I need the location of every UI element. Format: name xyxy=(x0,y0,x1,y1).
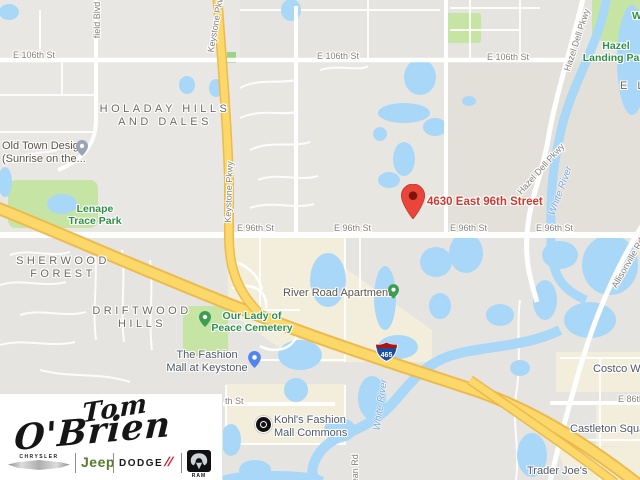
poi-label-kohls-commons[interactable]: Kohl's Fashion Mall Commons xyxy=(274,414,347,439)
brand-divider xyxy=(75,453,76,473)
park-line: Lenape xyxy=(68,203,121,215)
poi-label-our-lady-of-peace[interactable]: Our Lady of Peace Cemetery xyxy=(211,310,292,334)
poi-line: Mall at Keystone xyxy=(166,362,247,375)
poi-line: Mall Commons xyxy=(274,427,347,440)
street-label-dean-rd: Dean Rd xyxy=(350,454,360,480)
park-label-fragment: W xyxy=(632,10,640,22)
chrysler-logo-text: CHRYSLER xyxy=(8,454,70,460)
chrysler-wing-icon xyxy=(8,460,70,470)
street-label-e96th: E 96th St xyxy=(536,223,573,233)
poi-label-river-road-apartments[interactable]: River Road Apartments xyxy=(283,287,397,300)
street-label-e86th: E 86th St xyxy=(618,394,640,404)
neighborhood-label-driftwood-hills: DRIFTWOOD HILLS xyxy=(92,305,191,330)
map-canvas[interactable]: E 106th St E 106th St E 106th St E 96th … xyxy=(0,0,640,480)
poi-label-castleton-square[interactable]: Castleton Square xyxy=(570,423,640,436)
poi-line: (Sunrise on the... xyxy=(2,153,86,166)
ram-logo-text: RAM xyxy=(187,473,211,479)
street-label-e106th: E 106th St xyxy=(487,52,529,62)
kohls-logo-inner xyxy=(260,421,267,428)
dodge-slashes-icon: // xyxy=(163,454,173,469)
street-label-e86th-fragment: th St xyxy=(225,396,244,406)
brand-divider xyxy=(181,453,182,473)
neighborhood-line: DRIFTWOOD xyxy=(92,305,191,318)
jeep-logo-text: Jeep xyxy=(81,454,115,470)
poi-label-old-town-design[interactable]: Old Town Design (Sunrise on the... xyxy=(2,140,86,165)
street-label-keystone-pkwy: Keystone Pkwy xyxy=(223,161,235,223)
street-label-e106th: E 106th St xyxy=(13,50,55,60)
poi-line: Our Lady of xyxy=(211,310,292,322)
dodge-logo-text: DODGE xyxy=(119,458,163,469)
apartments-pin-icon[interactable] xyxy=(388,284,399,299)
park-label-lenape-trace: Lenape Trace Park xyxy=(68,203,121,227)
kohls-logo-marker[interactable] xyxy=(255,416,272,433)
interstate-465-shield-icon: 465 xyxy=(375,342,398,362)
neighborhood-label-holaday-hills: HOLADAY HILLS AND DALES xyxy=(100,103,231,128)
neighborhood-label-sherwood-forest: SHERWOOD FOREST xyxy=(16,255,110,280)
old-town-pin-icon[interactable] xyxy=(76,140,88,156)
park-line: Hazel xyxy=(583,40,640,52)
neighborhood-line: SHERWOOD xyxy=(16,255,110,268)
street-label-e96th: E 96th St xyxy=(450,223,487,233)
poi-label-trader-joes[interactable]: Trader Joe's xyxy=(527,465,587,478)
ram-head-icon xyxy=(187,450,211,472)
dealer-signature-last-name: O'Brien xyxy=(13,404,172,459)
poi-line: Kohl's Fashion xyxy=(274,414,347,427)
ram-logo-icon xyxy=(187,450,211,472)
dealer-logo-box: Tom O'Brien CHRYSLER Jeep DODGE // RAM xyxy=(0,393,223,480)
park-label-hazel-landing: Hazel Landing Park xyxy=(583,40,640,64)
park-line: Trace Park xyxy=(68,215,121,227)
poi-label-fashion-mall[interactable]: The Fashion Mall at Keystone xyxy=(166,349,247,374)
svg-text:465: 465 xyxy=(381,352,393,359)
neighborhood-line: AND DALES xyxy=(100,116,231,129)
neighborhood-line: FOREST xyxy=(16,268,110,281)
destination-address-label: 4630 East 96th Street xyxy=(427,196,543,209)
brand-divider xyxy=(113,453,114,473)
street-label-e106th: E 106th St xyxy=(317,51,359,61)
destination-pin-icon[interactable] xyxy=(401,184,425,219)
park-line: Landing Park xyxy=(583,52,640,64)
poi-line: Old Town Design xyxy=(2,140,86,153)
neighborhood-line: HILLS xyxy=(92,318,191,331)
poi-line: Peace Cemetery xyxy=(211,322,292,334)
street-label-e96th: E 96th St xyxy=(237,223,274,233)
street-label-westfield-blvd-fragment: field Blvd xyxy=(92,2,102,39)
cemetery-pin-icon[interactable] xyxy=(199,311,211,327)
shopping-pin-icon[interactable] xyxy=(248,351,261,368)
brand-logo-row: CHRYSLER Jeep DODGE // RAM xyxy=(0,454,223,480)
poi-label-costco[interactable]: Costco Wholesale xyxy=(593,363,640,376)
neighborhood-line: HOLADAY HILLS xyxy=(100,103,231,116)
street-label-e96th: E 96th St xyxy=(334,223,371,233)
neighborhood-label-fragment: E L xyxy=(620,80,640,93)
poi-line: The Fashion xyxy=(166,349,247,362)
